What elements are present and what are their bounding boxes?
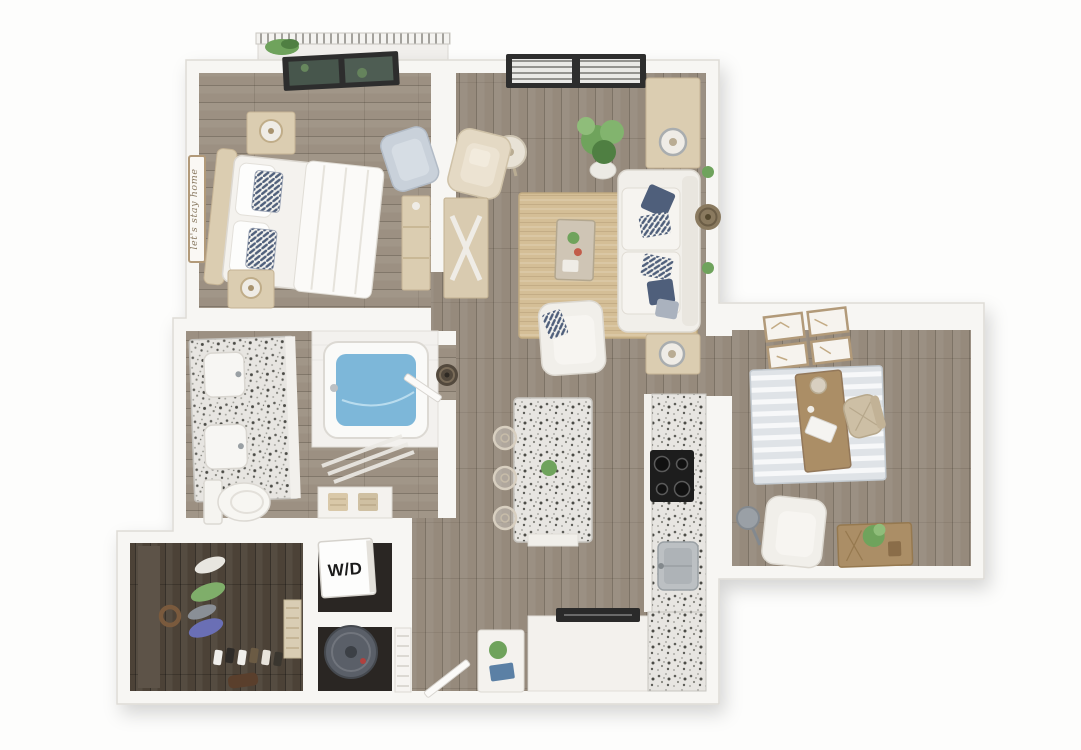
- washer-dryer: W/D: [318, 538, 376, 598]
- plant-icon: [489, 641, 507, 659]
- round-wall-decor: [695, 204, 721, 230]
- kitchen-island: [514, 398, 592, 546]
- bedroom-window: [282, 51, 400, 91]
- wall-plant: [702, 166, 714, 178]
- water-heater-closet: [325, 626, 377, 678]
- decor-box-icon: [888, 541, 902, 556]
- dresser: [402, 196, 430, 290]
- louver-doors: [395, 628, 411, 692]
- hall-round-wall-decor: [436, 364, 458, 386]
- nightstand: [247, 112, 295, 154]
- kitchen-base-cabinets: [528, 608, 706, 691]
- double-vanity: [189, 336, 301, 502]
- kitchen-sink: [658, 542, 698, 590]
- desk: [795, 370, 851, 472]
- kitchen-side-table: [478, 630, 524, 692]
- faucet-icon: [658, 563, 664, 569]
- living-room-window: [506, 54, 646, 88]
- sofa-side-table: [646, 334, 700, 374]
- console-table: [444, 198, 488, 298]
- credenza: [837, 523, 912, 568]
- sofa-side-table: [646, 78, 700, 168]
- living-accent-chair: [538, 300, 607, 376]
- floor-plan-canvas: let's stay home: [0, 0, 1081, 750]
- bed-accent-pillow: [251, 170, 283, 213]
- closet-shelf-band: [138, 546, 160, 688]
- island-plant: [541, 460, 557, 476]
- bar-stool: [494, 507, 516, 529]
- wall-sign-text: let's stay home: [189, 168, 200, 249]
- tub-water: [336, 354, 416, 426]
- floor-plan-svg: let's stay home: [0, 0, 1081, 750]
- laundry-closet: W/D: [318, 538, 376, 598]
- nightstand: [228, 270, 274, 308]
- sofa: [618, 170, 700, 332]
- office-armchair: [761, 495, 828, 569]
- toilet: [204, 480, 270, 524]
- wall-sign: let's stay home: [189, 156, 205, 262]
- linen-shelf: [318, 487, 392, 518]
- washer-dryer-label: W/D: [327, 559, 363, 580]
- cooktop: [650, 450, 694, 502]
- bar-stool: [494, 467, 516, 489]
- bar-stool: [494, 427, 516, 449]
- towels-icon: [358, 493, 378, 511]
- tub-faucet-icon: [330, 384, 338, 392]
- bed-accent-pillow: [245, 228, 277, 271]
- office-doorway: [706, 336, 732, 396]
- sofa-pillow: [655, 298, 680, 320]
- coffee-table: [555, 219, 595, 280]
- books-icon: [489, 662, 515, 681]
- towels-icon: [328, 493, 348, 511]
- desk-lamp-icon: [810, 377, 828, 395]
- closet-louver-door: [284, 600, 301, 658]
- wall-plant: [702, 262, 714, 274]
- water-heater: [325, 626, 377, 678]
